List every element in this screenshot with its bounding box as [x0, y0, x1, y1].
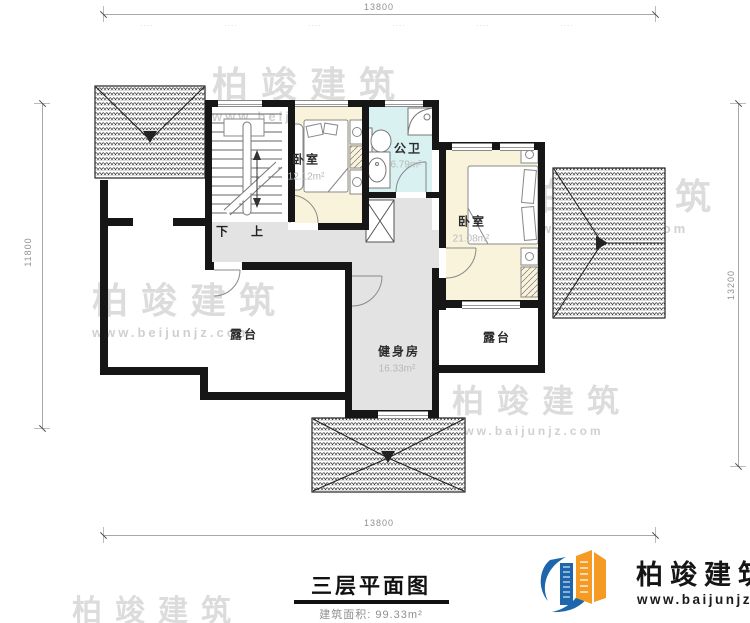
watermark-left: 柏竣建筑 www.beijunjz.com: [92, 272, 288, 342]
terrace-right-label: 露台: [483, 329, 511, 346]
wall: [200, 392, 352, 400]
dimension-bottom-value: 13800: [364, 518, 394, 528]
watermark-bottom: 柏竣建筑 www.baijunjz.com: [452, 376, 632, 440]
building-area-text: 建筑面积: 99.33m²: [319, 606, 422, 622]
bedroom-small-label: 卧室: [292, 151, 320, 168]
dimension-segment: ····: [308, 23, 321, 30]
building-area-label: 建筑面积:: [319, 609, 371, 621]
watermark-bottom-left: 柏竣建筑: [72, 586, 244, 623]
vestibule-floor: [369, 198, 432, 230]
dimension-left-value: 11800: [23, 237, 33, 266]
window: [218, 100, 262, 107]
gym-floor: [352, 268, 432, 410]
dimension-segment: ····: [392, 23, 405, 30]
dimension-segment: ····: [140, 23, 153, 30]
watermark-brand-text: 柏竣建筑: [212, 64, 408, 105]
window: [385, 100, 423, 107]
wall: [318, 223, 369, 230]
dimension-segment: ····: [476, 23, 489, 30]
window: [378, 411, 428, 419]
roof-top-left: [95, 86, 205, 178]
watermark-right: 柏竣建筑 www.beijunjz.com: [528, 168, 750, 234]
brand-logo-name: 柏竣建筑: [636, 553, 750, 592]
dimension-right-value: 13200: [726, 270, 736, 300]
window: [452, 143, 492, 151]
gym-label: 健身房: [378, 343, 420, 360]
bathroom-label: 公卫: [394, 140, 422, 157]
dimension-segment: ····: [560, 23, 573, 30]
stairs-down-label: 下: [216, 223, 228, 240]
wall: [362, 100, 369, 230]
building-area-value: 99.33m²: [375, 609, 422, 621]
brand-logo-url: www.baijunjz.com: [637, 592, 750, 607]
wall: [439, 150, 446, 248]
dimension-line-left: [42, 103, 43, 428]
wall: [205, 262, 214, 270]
bedroom-large-label: 卧室: [458, 213, 486, 230]
watermark-brand-text: 柏竣建筑: [528, 176, 724, 217]
stairs-up-label: 上: [251, 223, 263, 240]
dimension-top-value: 13800: [364, 2, 394, 12]
dimension-line-bottom: [103, 535, 655, 536]
wall: [205, 100, 212, 270]
terrace-left-label: 露台: [230, 326, 258, 343]
gym-area: 16.33m²: [379, 364, 416, 375]
wall: [100, 367, 208, 375]
wall: [173, 218, 212, 226]
bedroom-small-area: 12.12m²: [288, 172, 325, 183]
watermark-url-text: www.beijunjz.com: [92, 325, 252, 340]
wall: [100, 180, 108, 375]
window: [500, 143, 534, 151]
roof-bottom: [312, 418, 465, 492]
dimension-line-right: [738, 103, 739, 466]
watermark-brand-text: 柏竣建筑: [92, 280, 288, 321]
wall: [426, 192, 439, 198]
dimension-segment: ····: [224, 23, 237, 30]
wall: [432, 268, 439, 418]
plan-title: 三层平面图: [311, 570, 431, 600]
wall: [538, 142, 545, 373]
brand-logo-icon: [541, 550, 606, 612]
window: [292, 100, 348, 107]
title-underline: [294, 600, 449, 604]
bedroom-large-area: 21.08m²: [453, 234, 490, 245]
watermark-url-text: www.beijunjz.com: [528, 221, 688, 234]
wall: [108, 218, 133, 226]
bathroom-area: 6.79m²: [390, 160, 421, 171]
watermark-url-text: www.baijunjz.com: [452, 424, 604, 438]
wall: [362, 192, 396, 198]
staircase: [212, 114, 282, 215]
wall: [242, 262, 352, 270]
dimension-line-top: [103, 14, 655, 15]
watermark-brand-text: 柏竣建筑: [72, 595, 244, 623]
wall: [432, 365, 545, 373]
watermark-brand-text: 柏竣建筑: [452, 383, 632, 419]
floor-plan-canvas: 柏竣建筑 www.beijunjz.com 柏竣建筑 www.beijunjz.…: [0, 0, 750, 623]
window: [462, 301, 520, 309]
